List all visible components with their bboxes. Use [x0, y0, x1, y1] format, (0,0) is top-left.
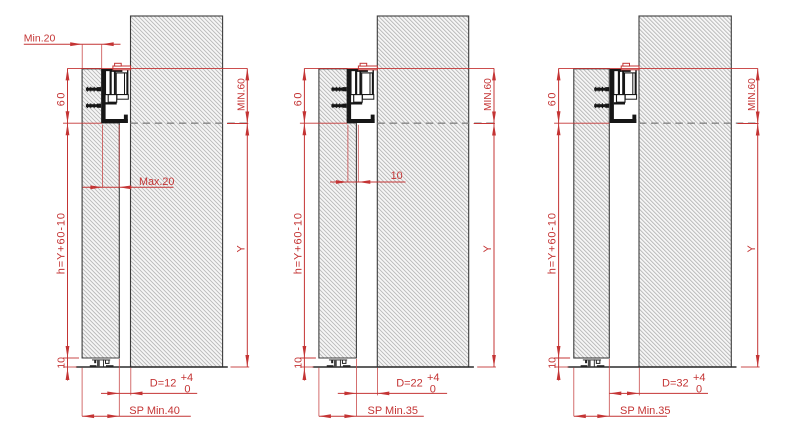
svg-text:0: 0: [184, 384, 190, 396]
svg-text:h=Y+60-10: h=Y+60-10: [547, 212, 559, 274]
svg-text:Min.20: Min.20: [24, 32, 56, 44]
svg-text:60: 60: [56, 91, 68, 106]
svg-text:60: 60: [293, 91, 305, 106]
svg-text:D=12: D=12: [150, 377, 177, 389]
svg-text:Max.20: Max.20: [139, 176, 174, 188]
svg-text:Y: Y: [746, 245, 758, 252]
svg-text:Y: Y: [482, 245, 494, 252]
svg-text:+4: +4: [427, 372, 440, 384]
svg-text:SP Min.35: SP Min.35: [620, 405, 671, 417]
svg-text:SP Min.40: SP Min.40: [129, 405, 180, 417]
svg-text:Y: Y: [235, 245, 247, 252]
svg-text:0: 0: [696, 384, 702, 396]
svg-text:60: 60: [547, 91, 559, 106]
svg-text:MIN.60: MIN.60: [483, 78, 494, 111]
svg-text:+4: +4: [181, 372, 194, 384]
svg-text:D=22: D=22: [396, 377, 423, 389]
svg-text:D=32: D=32: [662, 377, 689, 389]
svg-text:h=Y+60-10: h=Y+60-10: [293, 212, 305, 274]
svg-text:10: 10: [548, 357, 559, 369]
svg-text:0: 0: [430, 384, 436, 396]
svg-text:+4: +4: [693, 372, 706, 384]
svg-text:SP Min.35: SP Min.35: [368, 405, 419, 417]
svg-text:10: 10: [57, 357, 68, 369]
svg-text:MIN.60: MIN.60: [236, 78, 247, 111]
svg-text:10: 10: [391, 170, 403, 182]
svg-text:MIN.60: MIN.60: [747, 78, 758, 111]
svg-text:10: 10: [294, 357, 305, 369]
svg-text:h=Y+60-10: h=Y+60-10: [56, 212, 68, 274]
